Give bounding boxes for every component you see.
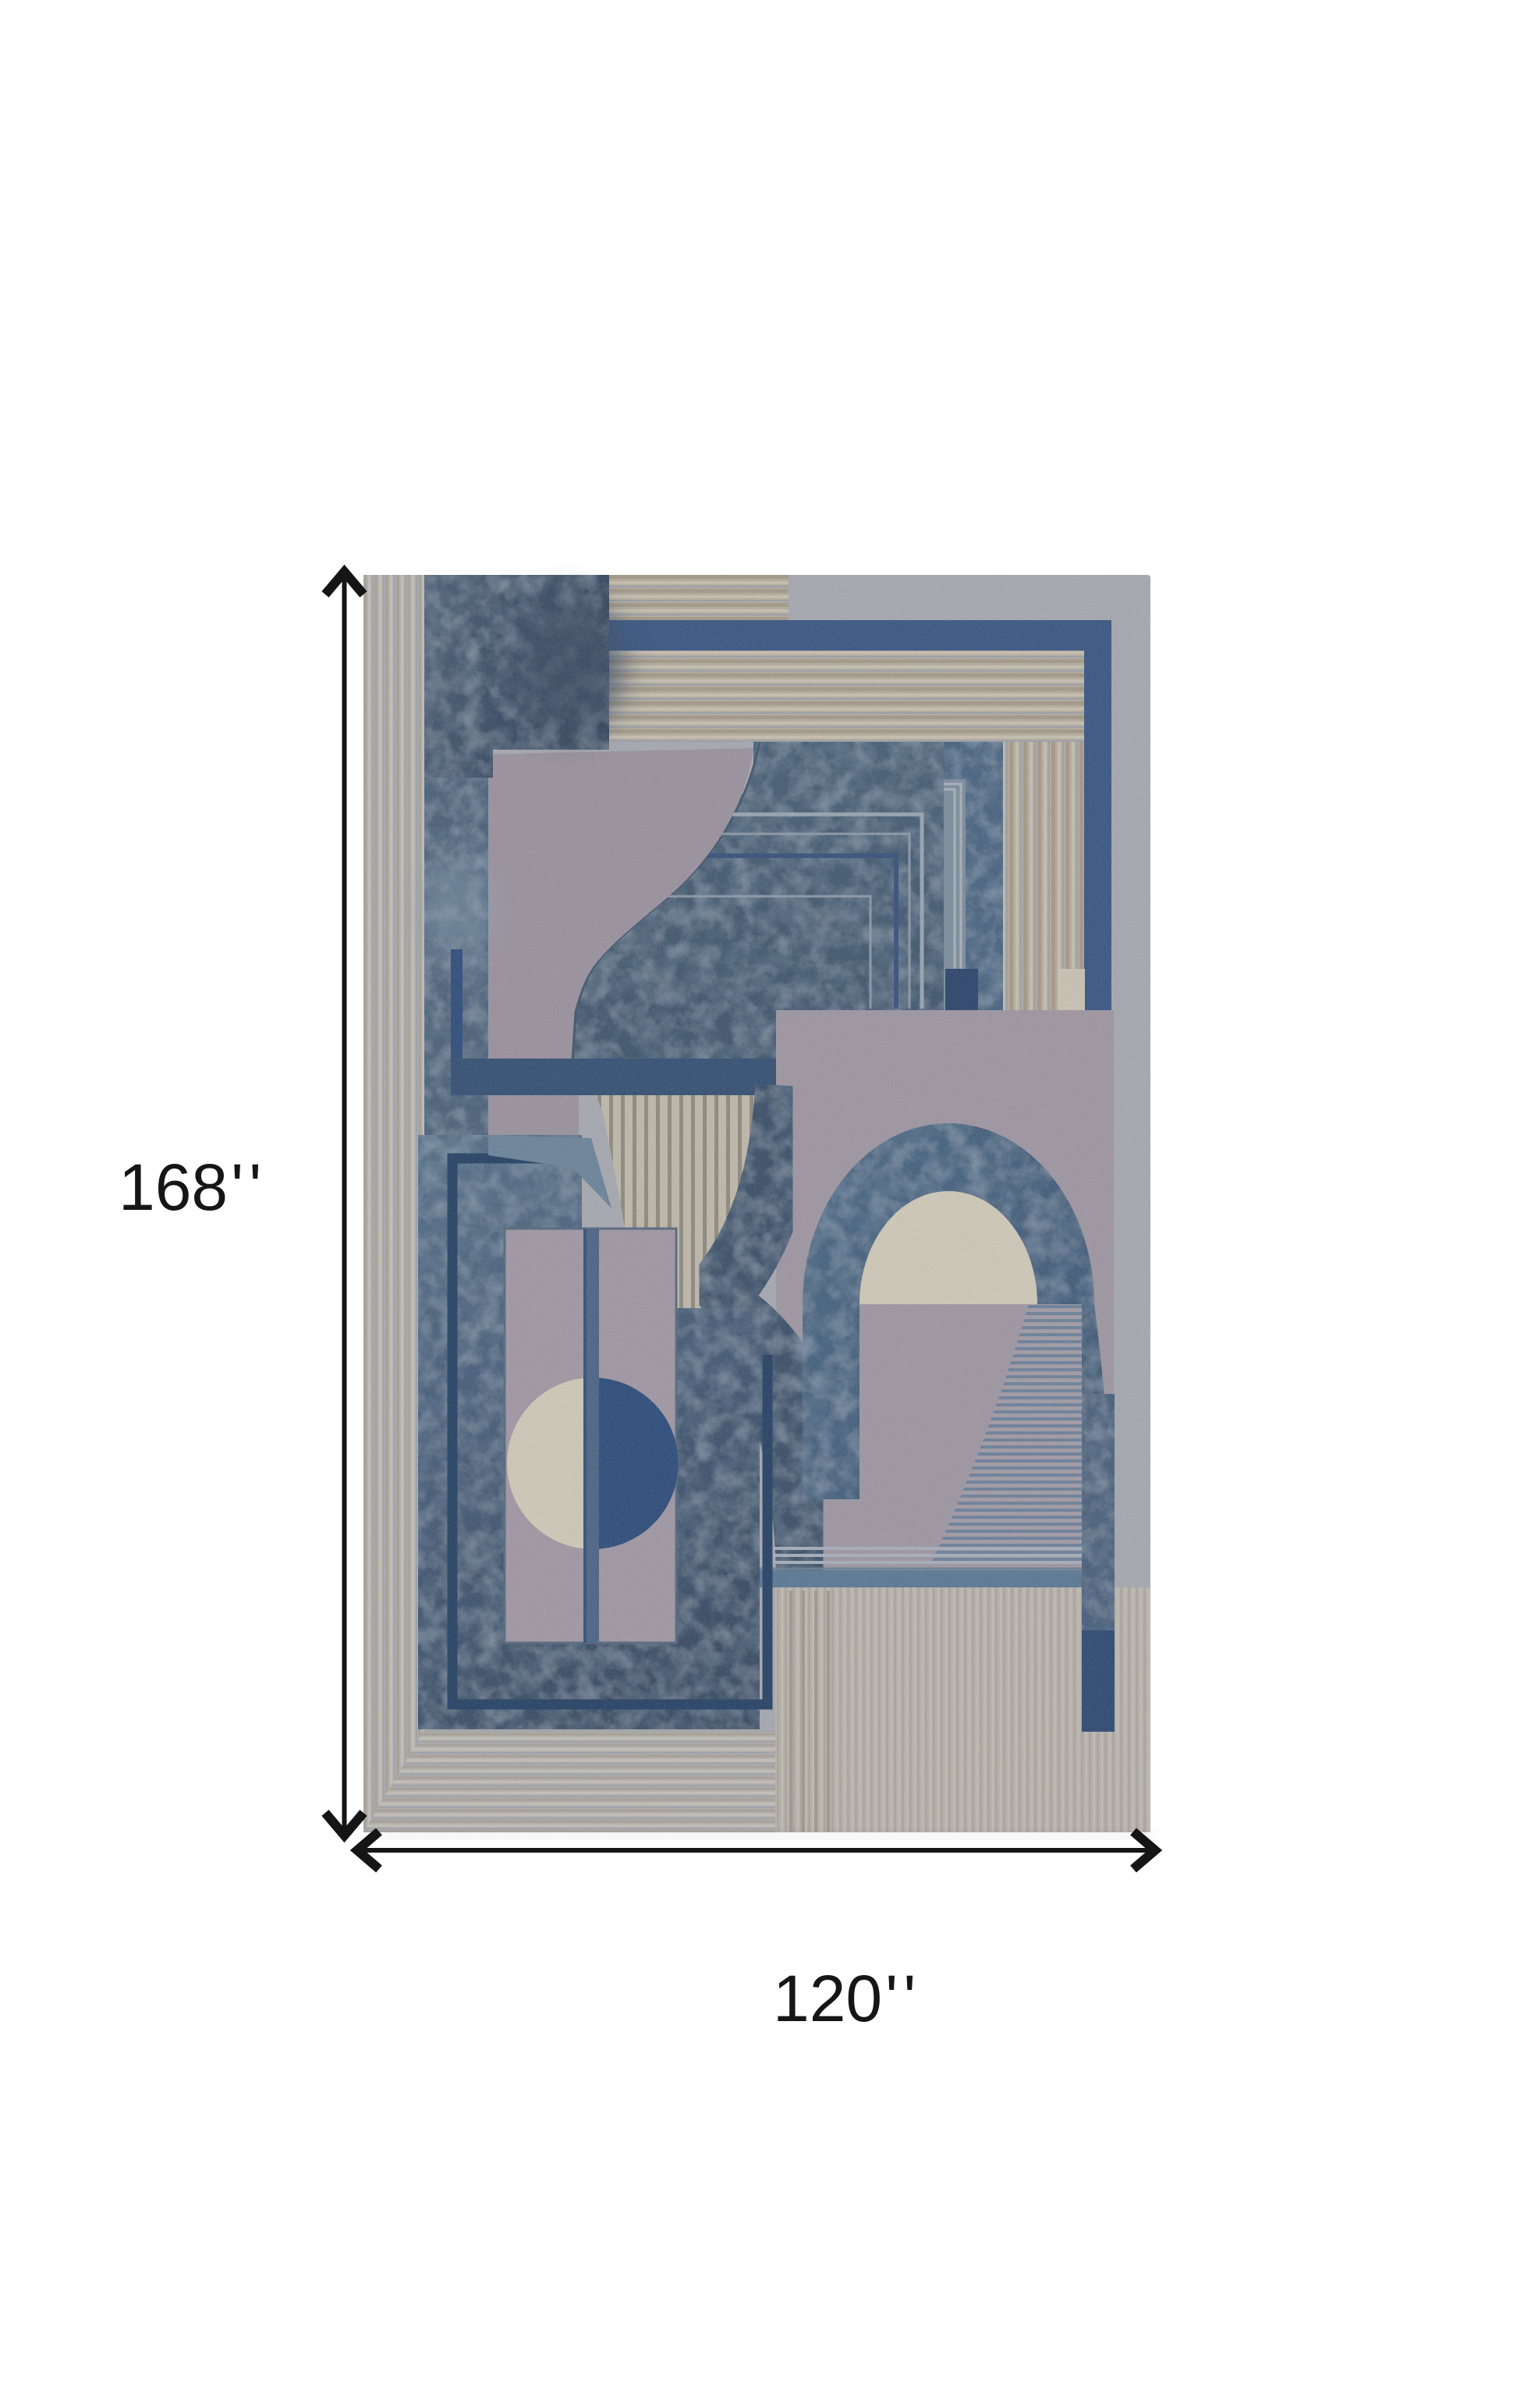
- svg-text:120'': 120'': [773, 1962, 916, 2035]
- svg-text:168'': 168'': [119, 1151, 261, 1224]
